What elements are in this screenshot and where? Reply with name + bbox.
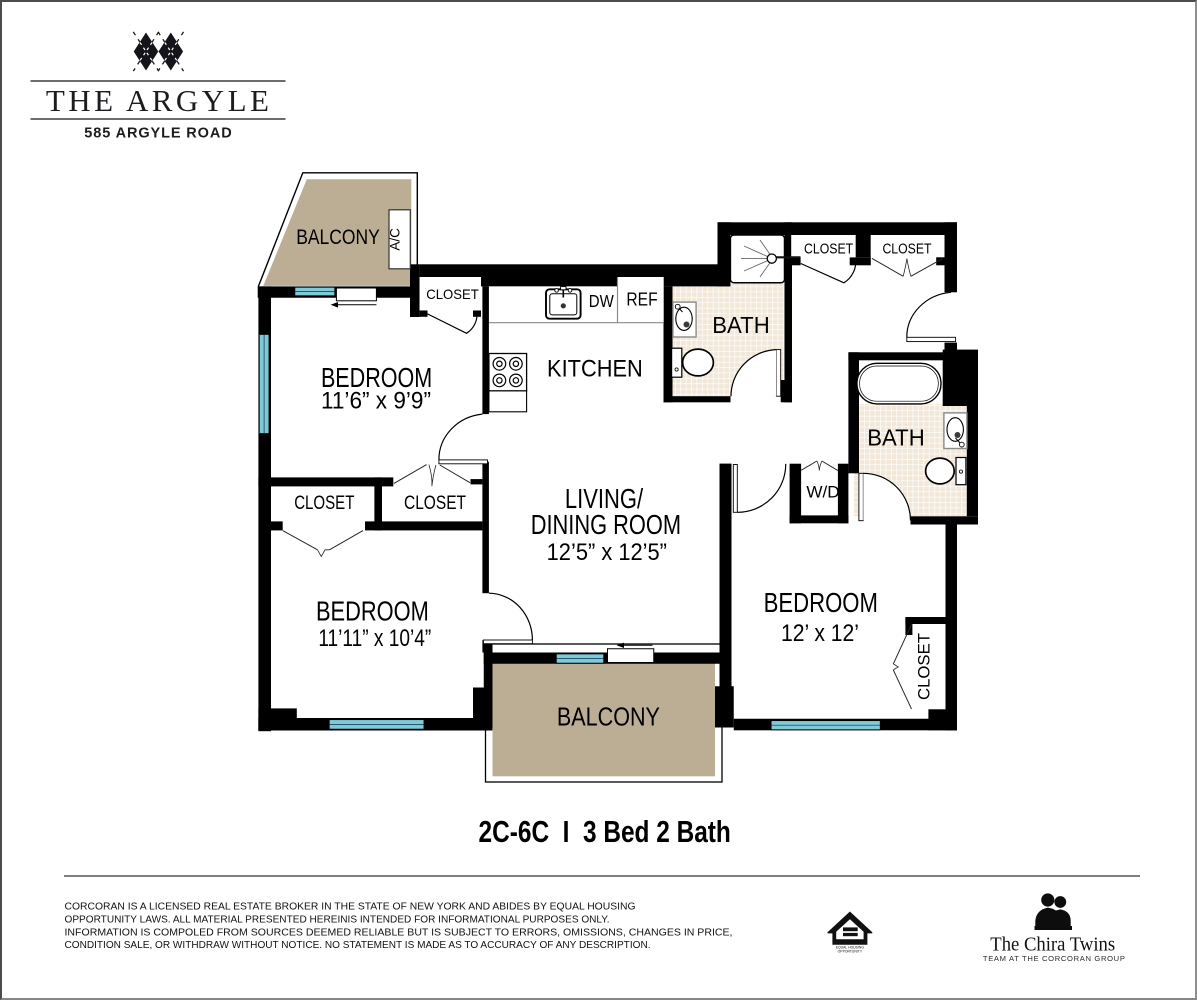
- svg-text:KITCHEN: KITCHEN: [547, 356, 643, 383]
- svg-text:CLOSET: CLOSET: [804, 242, 853, 258]
- svg-text:REF: REF: [626, 290, 657, 310]
- svg-text:CLOSET: CLOSET: [882, 242, 931, 258]
- svg-text:INFORMATION IS COMPOLED FROM S: INFORMATION IS COMPOLED FROM SOURCES DEE…: [65, 927, 733, 938]
- svg-text:BEDROOM: BEDROOM: [316, 596, 429, 627]
- svg-text:2C-6C I 3 Bed 2 Bath: 2C-6C I 3 Bed 2 Bath: [479, 814, 731, 849]
- svg-text:CLOSET: CLOSET: [426, 286, 479, 302]
- svg-text:CLOSET: CLOSET: [294, 492, 354, 514]
- svg-text:12’ x 12’: 12’ x 12’: [781, 620, 859, 647]
- svg-text:The Chira Twins: The Chira Twins: [990, 934, 1115, 955]
- svg-text:12’5” x 12’5”: 12’5” x 12’5”: [547, 539, 667, 566]
- svg-text:BEDROOM: BEDROOM: [764, 587, 878, 618]
- svg-text:11’11” x 10’4”: 11’11” x 10’4”: [318, 625, 431, 652]
- svg-text:BATH: BATH: [867, 424, 924, 450]
- svg-text:CLOSET: CLOSET: [404, 492, 466, 514]
- svg-text:11’6” x 9’9”: 11’6” x 9’9”: [321, 388, 431, 415]
- svg-text:BATH: BATH: [712, 312, 769, 338]
- svg-text:THE ARGYLE: THE ARGYLE: [46, 83, 269, 118]
- svg-text:TEAM AT THE CORCORAN GROUP: TEAM AT THE CORCORAN GROUP: [983, 954, 1125, 963]
- svg-text:DINING ROOM: DINING ROOM: [531, 509, 681, 540]
- svg-text:BALCONY: BALCONY: [296, 226, 380, 249]
- svg-text:DW: DW: [589, 291, 614, 311]
- svg-text:OPPORTUNITY: OPPORTUNITY: [838, 949, 863, 953]
- svg-text:CORCORAN IS A LICENSED REAL ES: CORCORAN IS A LICENSED REAL ESTATE BROKE…: [65, 902, 636, 913]
- svg-text:585 ARGYLE ROAD: 585 ARGYLE ROAD: [84, 126, 231, 142]
- svg-text:OPPORTUNITY LAWS. ALL MATERIAL: OPPORTUNITY LAWS. ALL MATERIAL PRESENTED…: [65, 914, 610, 925]
- svg-text:CLOSET: CLOSET: [916, 633, 934, 700]
- svg-text:BALCONY: BALCONY: [557, 702, 660, 732]
- svg-text:CONDITION SALE, OR WITHDRAW WI: CONDITION SALE, OR WITHDRAW WITHOUT NOTI…: [65, 940, 651, 951]
- svg-text:W/D: W/D: [806, 484, 839, 502]
- svg-text:A/C: A/C: [388, 228, 403, 251]
